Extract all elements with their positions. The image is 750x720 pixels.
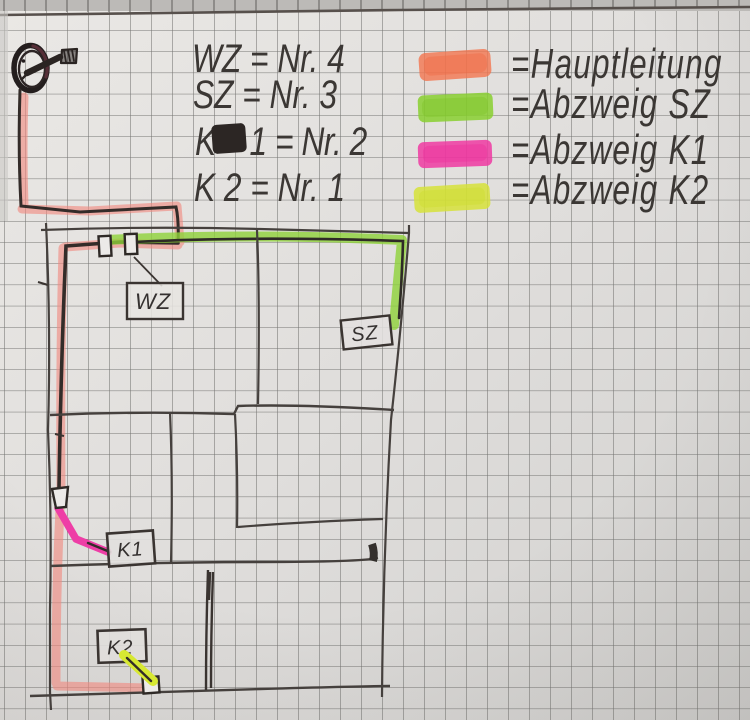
svg-text:WZ: WZ (135, 289, 172, 314)
svg-text:1 = Nr. 2: 1 = Nr. 2 (250, 120, 368, 164)
svg-text:=Abzweig SZ: =Abzweig SZ (511, 81, 711, 127)
svg-text:K 2 = Nr. 1: K 2 = Nr. 1 (194, 166, 345, 210)
svg-text:=Abzweig K2: =Abzweig K2 (511, 167, 710, 213)
svg-text:SZ = Nr. 3: SZ = Nr. 3 (193, 73, 337, 117)
svg-text:SZ: SZ (350, 322, 380, 347)
svg-text:K1: K1 (116, 538, 144, 562)
